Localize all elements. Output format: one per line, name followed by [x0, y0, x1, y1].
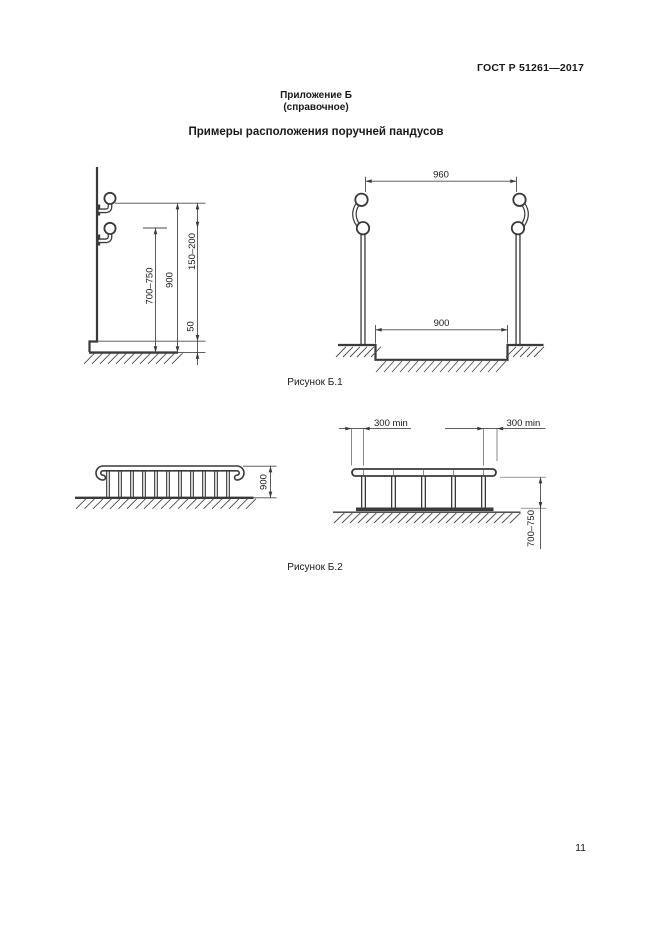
drawing-b1-post-handrails: 960 900 [330, 160, 562, 375]
dim-label-700-750: 700–750 [145, 268, 156, 305]
dimension-chain-right: 150–200 50 [186, 203, 200, 365]
dim-label-50: 50 [186, 321, 197, 332]
page-title: Примеры расположения поручней пандусов [0, 126, 632, 138]
handrail-upper [99, 193, 116, 216]
standard-number: ГОСТ Р 51261—2017 [477, 62, 584, 74]
upper-rail-section [355, 194, 367, 206]
dimension-900: 900 [165, 203, 180, 352]
dimension-700-750: 700–750 [500, 477, 546, 549]
upper-rail-section [104, 193, 115, 204]
appendix-type: (справочное) [0, 102, 632, 113]
lower-rail-section [357, 222, 369, 234]
drawing-b2-post-railing: 300 min 300 min 700–750 [330, 405, 565, 572]
post-right [512, 194, 527, 345]
figure-b1-caption: Рисунок Б.1 [0, 377, 630, 388]
upper-rail-section [513, 194, 525, 206]
dimension-300min-right: 300 min [445, 418, 546, 466]
document-page: ГОСТ Р 51261—2017 Приложение Б (справочн… [0, 0, 661, 936]
handrail [356, 469, 493, 477]
dimension-900-clear: 900 [376, 318, 508, 344]
dim-label-300min-left: 300 min [374, 418, 408, 429]
ground-hatching [334, 513, 521, 523]
dimension-900: 900 [243, 466, 277, 498]
dim-label-150-200: 150–200 [187, 233, 198, 270]
drawing-b1-wall-handrails: 700–750 900 150–200 50 [78, 160, 210, 375]
dim-label-700-750: 700–750 [526, 510, 537, 547]
dim-label-900: 900 [434, 318, 450, 329]
dimension-700-750: 700–750 [145, 228, 158, 353]
posts [364, 474, 484, 509]
handrail-lower [99, 223, 116, 246]
dim-label-900: 900 [165, 272, 176, 288]
lower-rail-section [512, 222, 524, 234]
page-number: 11 [575, 842, 586, 854]
figure-b2-caption: Рисунок Б.2 [0, 562, 630, 573]
dim-label-300min-right: 300 min [507, 418, 541, 429]
balusters [108, 471, 228, 497]
dim-label-960: 960 [433, 170, 449, 181]
floor-hatching [84, 353, 183, 364]
post-left [354, 194, 369, 345]
appendix-label: Приложение Б [0, 90, 632, 101]
dimension-960: 960 [366, 170, 517, 193]
base-plate [333, 509, 521, 512]
dim-label-900: 900 [259, 474, 270, 490]
ground-hatching [76, 499, 256, 509]
drawing-b2-baluster-railing: 900 [70, 440, 285, 532]
lower-rail-section [104, 223, 115, 234]
dimension-300min-left: 300 min [339, 418, 411, 466]
